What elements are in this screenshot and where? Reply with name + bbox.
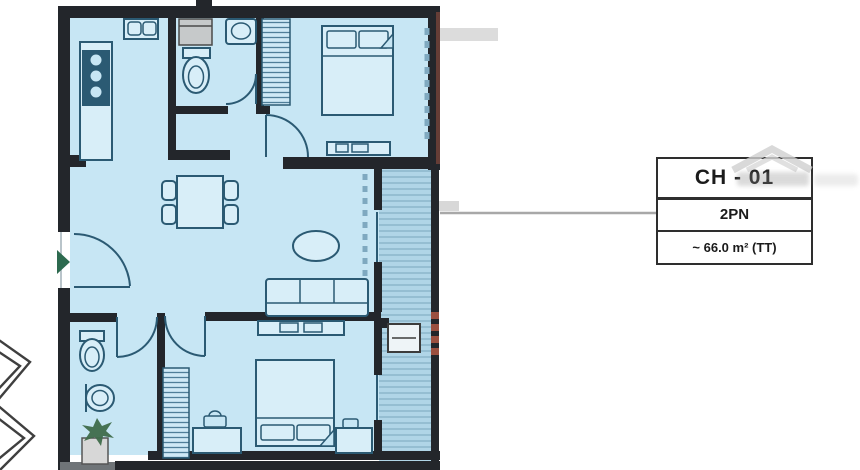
unit-bedrooms-text: 2PN [720,206,749,223]
dresser-icon [327,142,390,155]
unit-bedrooms: 2PN [658,202,811,228]
sofa-icon [266,279,368,316]
entry-arrow-icon [57,250,70,274]
card-divider [658,230,811,233]
wash-basin-icon [226,19,256,44]
dining-chair-icon [162,181,176,200]
wardrobe-icon [163,368,189,458]
toilet-icon [183,48,210,93]
unit-code: CH - 01 [658,161,811,195]
floor-plan-screenshot: CH - 01 2PN ~ 66.0 m² (TT) [0,0,860,470]
bed-icon [256,360,334,446]
unit-area-text: ~ 66.0 m² (TT) [692,240,776,255]
washing-machine-icon [179,19,212,45]
wash-basin-icon [86,384,114,412]
dining-table-icon [177,176,223,228]
dining-chair-icon [162,205,176,224]
toilet-icon [80,331,104,371]
coffee-table-icon [293,231,339,261]
adjacent-unit-outline [0,338,34,470]
dining-chair-icon [224,205,238,224]
exterior-ledge [440,28,498,41]
dresser-icon [258,321,344,335]
bed-icon [322,26,393,115]
balcony [379,169,431,463]
exterior-stub [439,201,459,211]
unit-label-card[interactable]: CH - 01 2PN ~ 66.0 m² (TT) [656,157,813,265]
wardrobe-icon [262,19,290,105]
unit-area: ~ 66.0 m² (TT) [658,234,811,261]
dining-chair-icon [224,181,238,200]
card-divider [658,197,811,200]
unit-code-text: CH - 01 [695,166,774,190]
